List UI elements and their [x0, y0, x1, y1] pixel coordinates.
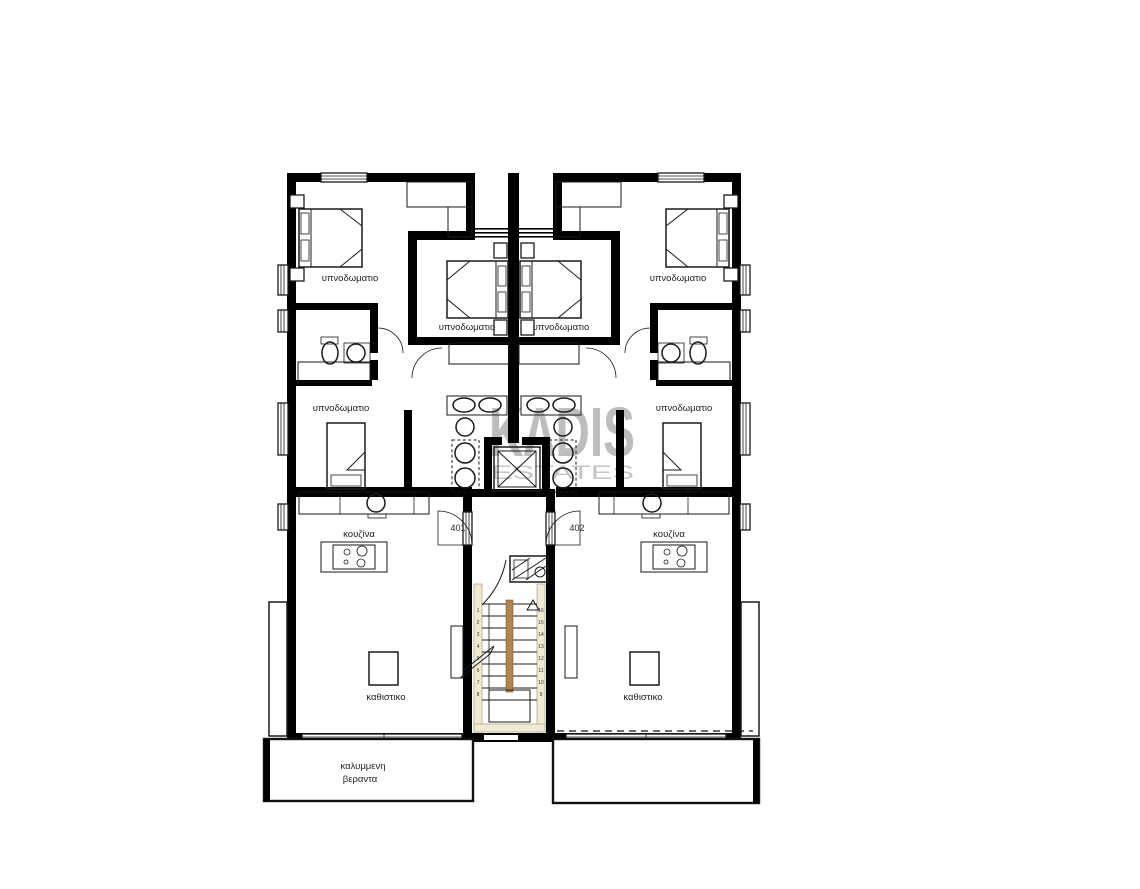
kitchen-label: κουζίνα [653, 529, 685, 540]
svg-text:2: 2 [477, 620, 480, 626]
veranda-label: βεραντα [343, 774, 378, 785]
living-room-label: καθιστικο [366, 692, 405, 703]
window-icon [740, 310, 750, 332]
window-icon [278, 403, 288, 455]
living-room-label: καθιστικο [623, 692, 662, 703]
column-box [451, 626, 463, 678]
bedroom-label: υπνοδωματιο [322, 273, 379, 284]
unit-number-402: 402 [569, 523, 584, 533]
double-bed-icon [290, 195, 362, 281]
coffee-table-icon [369, 652, 398, 685]
window-icon [740, 403, 750, 455]
stair-direction-arc [482, 560, 506, 605]
closet-icon [556, 182, 621, 207]
single-bed-icon [327, 423, 365, 489]
window-icon [740, 504, 750, 530]
boiler-icon [510, 556, 548, 582]
unit-number-401: 401 [450, 523, 465, 533]
bedroom-label: υπνοδωματιο [533, 322, 590, 333]
svg-text:9: 9 [540, 692, 543, 698]
closet-icon [407, 182, 472, 207]
window-icon [740, 265, 750, 295]
svg-text:6: 6 [477, 668, 480, 674]
bedroom-label: υπνοδωματιο [439, 322, 496, 333]
stove-icon [333, 545, 375, 569]
floor-plan-page: { "watermark": { "brand": "KΛDIS", "subt… [0, 0, 1140, 889]
svg-text:5: 5 [477, 656, 480, 662]
closet-icon [449, 343, 509, 364]
wc-icon [321, 337, 338, 364]
window-icon [321, 173, 367, 182]
door-arc-icon [586, 348, 616, 378]
coffee-table-icon [630, 652, 659, 685]
column-box [565, 626, 577, 678]
svg-text:12: 12 [538, 656, 544, 662]
closet-icon [298, 362, 370, 382]
window-icon [658, 173, 704, 182]
staircase: 1 2 3 4 5 6 7 8 16 15 14 13 12 11 10 9 [460, 556, 548, 732]
stair-trim [474, 724, 545, 732]
svg-text:3: 3 [477, 632, 480, 638]
svg-text:16: 16 [538, 608, 544, 614]
kitchen-label: κουζίνα [343, 529, 375, 540]
kitchen-island-icon [641, 542, 707, 572]
svg-text:10: 10 [538, 680, 544, 686]
wc-icon [690, 337, 707, 364]
svg-text:13: 13 [538, 644, 544, 650]
shower-icon [456, 418, 474, 436]
svg-text:11: 11 [538, 668, 543, 674]
veranda-label: καλυμμενη [340, 761, 385, 772]
svg-text:8: 8 [477, 692, 480, 698]
planter-box [269, 602, 287, 736]
single-bed-icon [663, 423, 701, 489]
window-icon [278, 265, 288, 295]
washbasin-icon [658, 343, 684, 363]
door-arc-icon [412, 348, 442, 378]
svg-text:14: 14 [538, 632, 544, 638]
bedroom-label: υπνοδωματιο [656, 403, 713, 414]
window-icon [278, 504, 288, 530]
floor-plan-drawing: KΛDIS ESTATES [0, 0, 1140, 889]
veranda-right [553, 731, 759, 803]
stove-icon [653, 545, 695, 569]
closet-icon [519, 343, 579, 364]
kitchen-island-icon [321, 542, 387, 572]
stair-stringer [506, 600, 513, 692]
planter-box [741, 602, 759, 736]
svg-text:1: 1 [477, 608, 480, 614]
closet-icon [658, 362, 730, 382]
bedroom-label: υπνοδωματιο [650, 273, 707, 284]
svg-text:4: 4 [477, 644, 480, 650]
window-icon [278, 310, 288, 332]
svg-text:7: 7 [477, 680, 480, 686]
door-arc-icon [378, 328, 403, 353]
bedroom-label: υπνοδωματιο [313, 403, 370, 414]
shower-unit-icon [452, 440, 479, 492]
washbasin-icon [344, 343, 370, 363]
door-arc-icon [625, 328, 650, 353]
stair-landing-outline [489, 690, 530, 722]
double-bed-icon [666, 195, 738, 281]
svg-text:15: 15 [538, 620, 544, 626]
